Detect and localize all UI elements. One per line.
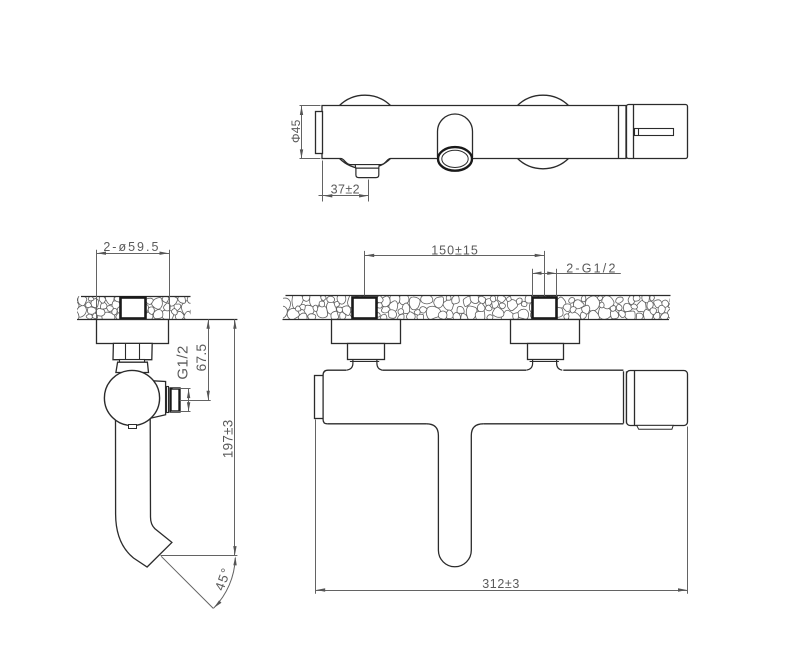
svg-text:Φ45: Φ45 bbox=[289, 119, 303, 143]
svg-text:312±3: 312±3 bbox=[482, 577, 520, 591]
svg-text:150±15: 150±15 bbox=[431, 243, 479, 257]
svg-text:37±2: 37±2 bbox=[331, 182, 360, 196]
svg-text:2-ø59.5: 2-ø59.5 bbox=[103, 240, 160, 254]
svg-text:67.5: 67.5 bbox=[193, 344, 209, 372]
svg-text:G1/2: G1/2 bbox=[175, 345, 192, 380]
svg-text:2-G1/2: 2-G1/2 bbox=[566, 261, 617, 275]
svg-text:197±3: 197±3 bbox=[221, 419, 236, 458]
